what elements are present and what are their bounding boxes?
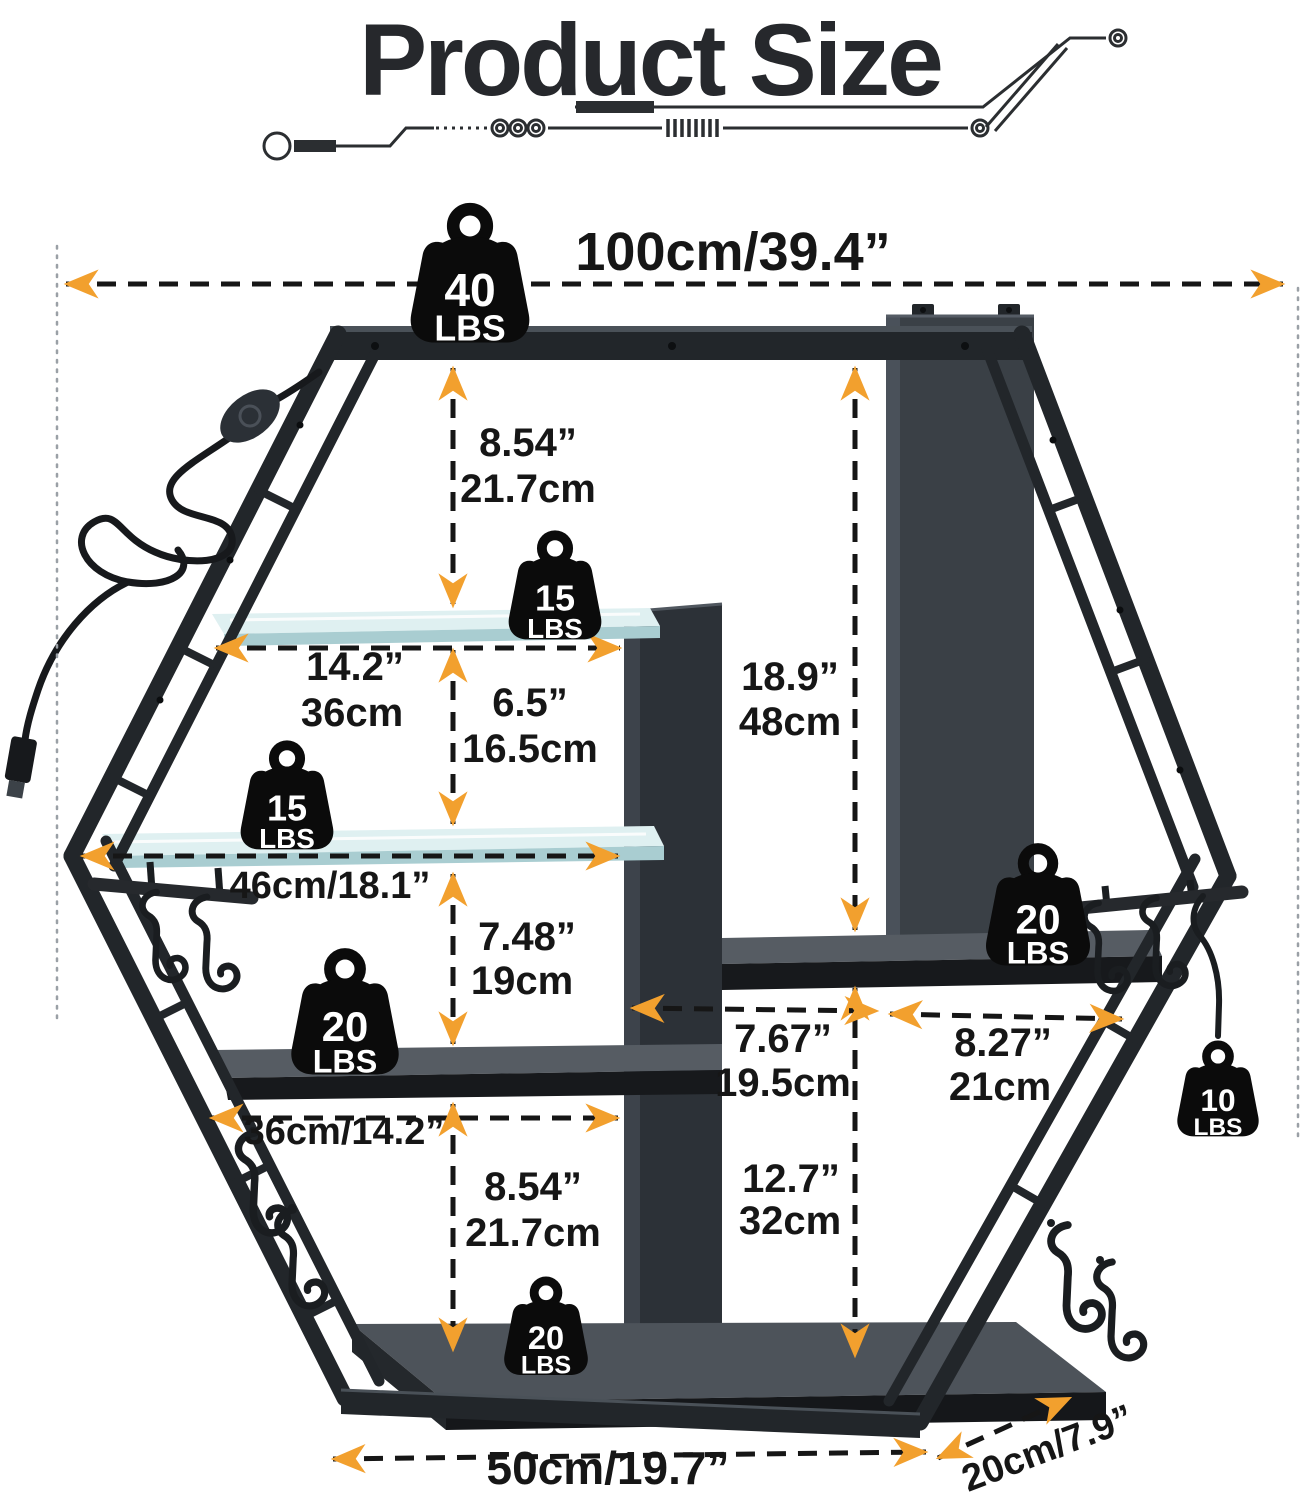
weight-badge-glass-upper: 15 LBS (509, 535, 602, 644)
weight-unit: LBS (434, 308, 505, 348)
weight-unit: LBS (1194, 1114, 1243, 1141)
weight-unit: LBS (527, 613, 583, 644)
weight-badge-mid-left: 20 LBS (291, 954, 398, 1080)
center-slot-inch: 7.67” (734, 1017, 832, 1061)
page-title: Product Size (359, 3, 941, 117)
dim-center-slot-line (632, 1008, 877, 1011)
glass-gap-metric: 16.5cm (462, 727, 598, 771)
glass-shelf-lower (102, 826, 664, 868)
glass-gap-inch: 6.5” (492, 681, 568, 725)
mid-shelf-width-label: 36cm/14.2” (244, 1111, 445, 1153)
top-to-glass1-inch: 8.54” (479, 421, 577, 465)
bottom-column-inch: 12.7” (742, 1157, 840, 1201)
glass1-width-metric: 36cm (301, 691, 403, 735)
glass2-width-label: 46cm/18.1” (230, 865, 431, 907)
top-to-glass1-metric: 21.7cm (460, 467, 596, 511)
weight-badge-top: 40 LBS (411, 209, 530, 348)
right-slot-metric: 21cm (949, 1065, 1051, 1109)
dim-right-slot-line (890, 1014, 1122, 1019)
weight-unit: LBS (313, 1044, 378, 1080)
mid-left-shelf (214, 1044, 722, 1100)
overall-width-label: 100cm/39.4” (575, 222, 890, 282)
center-slot-metric: 19.5cm (715, 1061, 851, 1105)
weight-unit: LBS (1007, 936, 1070, 971)
center-divider (624, 604, 722, 1398)
usb-plug (1, 736, 37, 800)
tick-marks (668, 119, 717, 137)
back-column-metric: 48cm (739, 700, 841, 744)
weight-badge-glass-lower: 15 LBS (241, 745, 334, 854)
back-column-inch: 18.9” (741, 655, 839, 699)
glass2-to-shelf-metric: 19cm (471, 959, 573, 1003)
glass2-to-shelf-inch: 7.48” (478, 915, 576, 959)
shelf-to-bottom-inch: 8.54” (484, 1165, 582, 1209)
weight-value: 10 (1200, 1082, 1235, 1118)
bottom-column-metric: 32cm (739, 1199, 841, 1243)
glass1-width-inch: 14.2” (306, 645, 404, 689)
weight-badge-bottom: 20 LBS (504, 1281, 588, 1380)
product-size-diagram: Product Size (0, 0, 1307, 1500)
s-hook-icon (192, 897, 237, 989)
shelf-to-bottom-metric: 21.7cm (465, 1211, 601, 1255)
right-slot-inch: 8.27” (954, 1021, 1052, 1065)
weight-unit: LBS (259, 823, 315, 854)
weight-badge-hook-right: 10 LBS (1177, 1045, 1258, 1141)
weight-value: 20 (528, 1320, 564, 1356)
weight-unit: LBS (521, 1351, 571, 1379)
bottom-width-label: 50cm/19.7” (487, 1442, 730, 1494)
